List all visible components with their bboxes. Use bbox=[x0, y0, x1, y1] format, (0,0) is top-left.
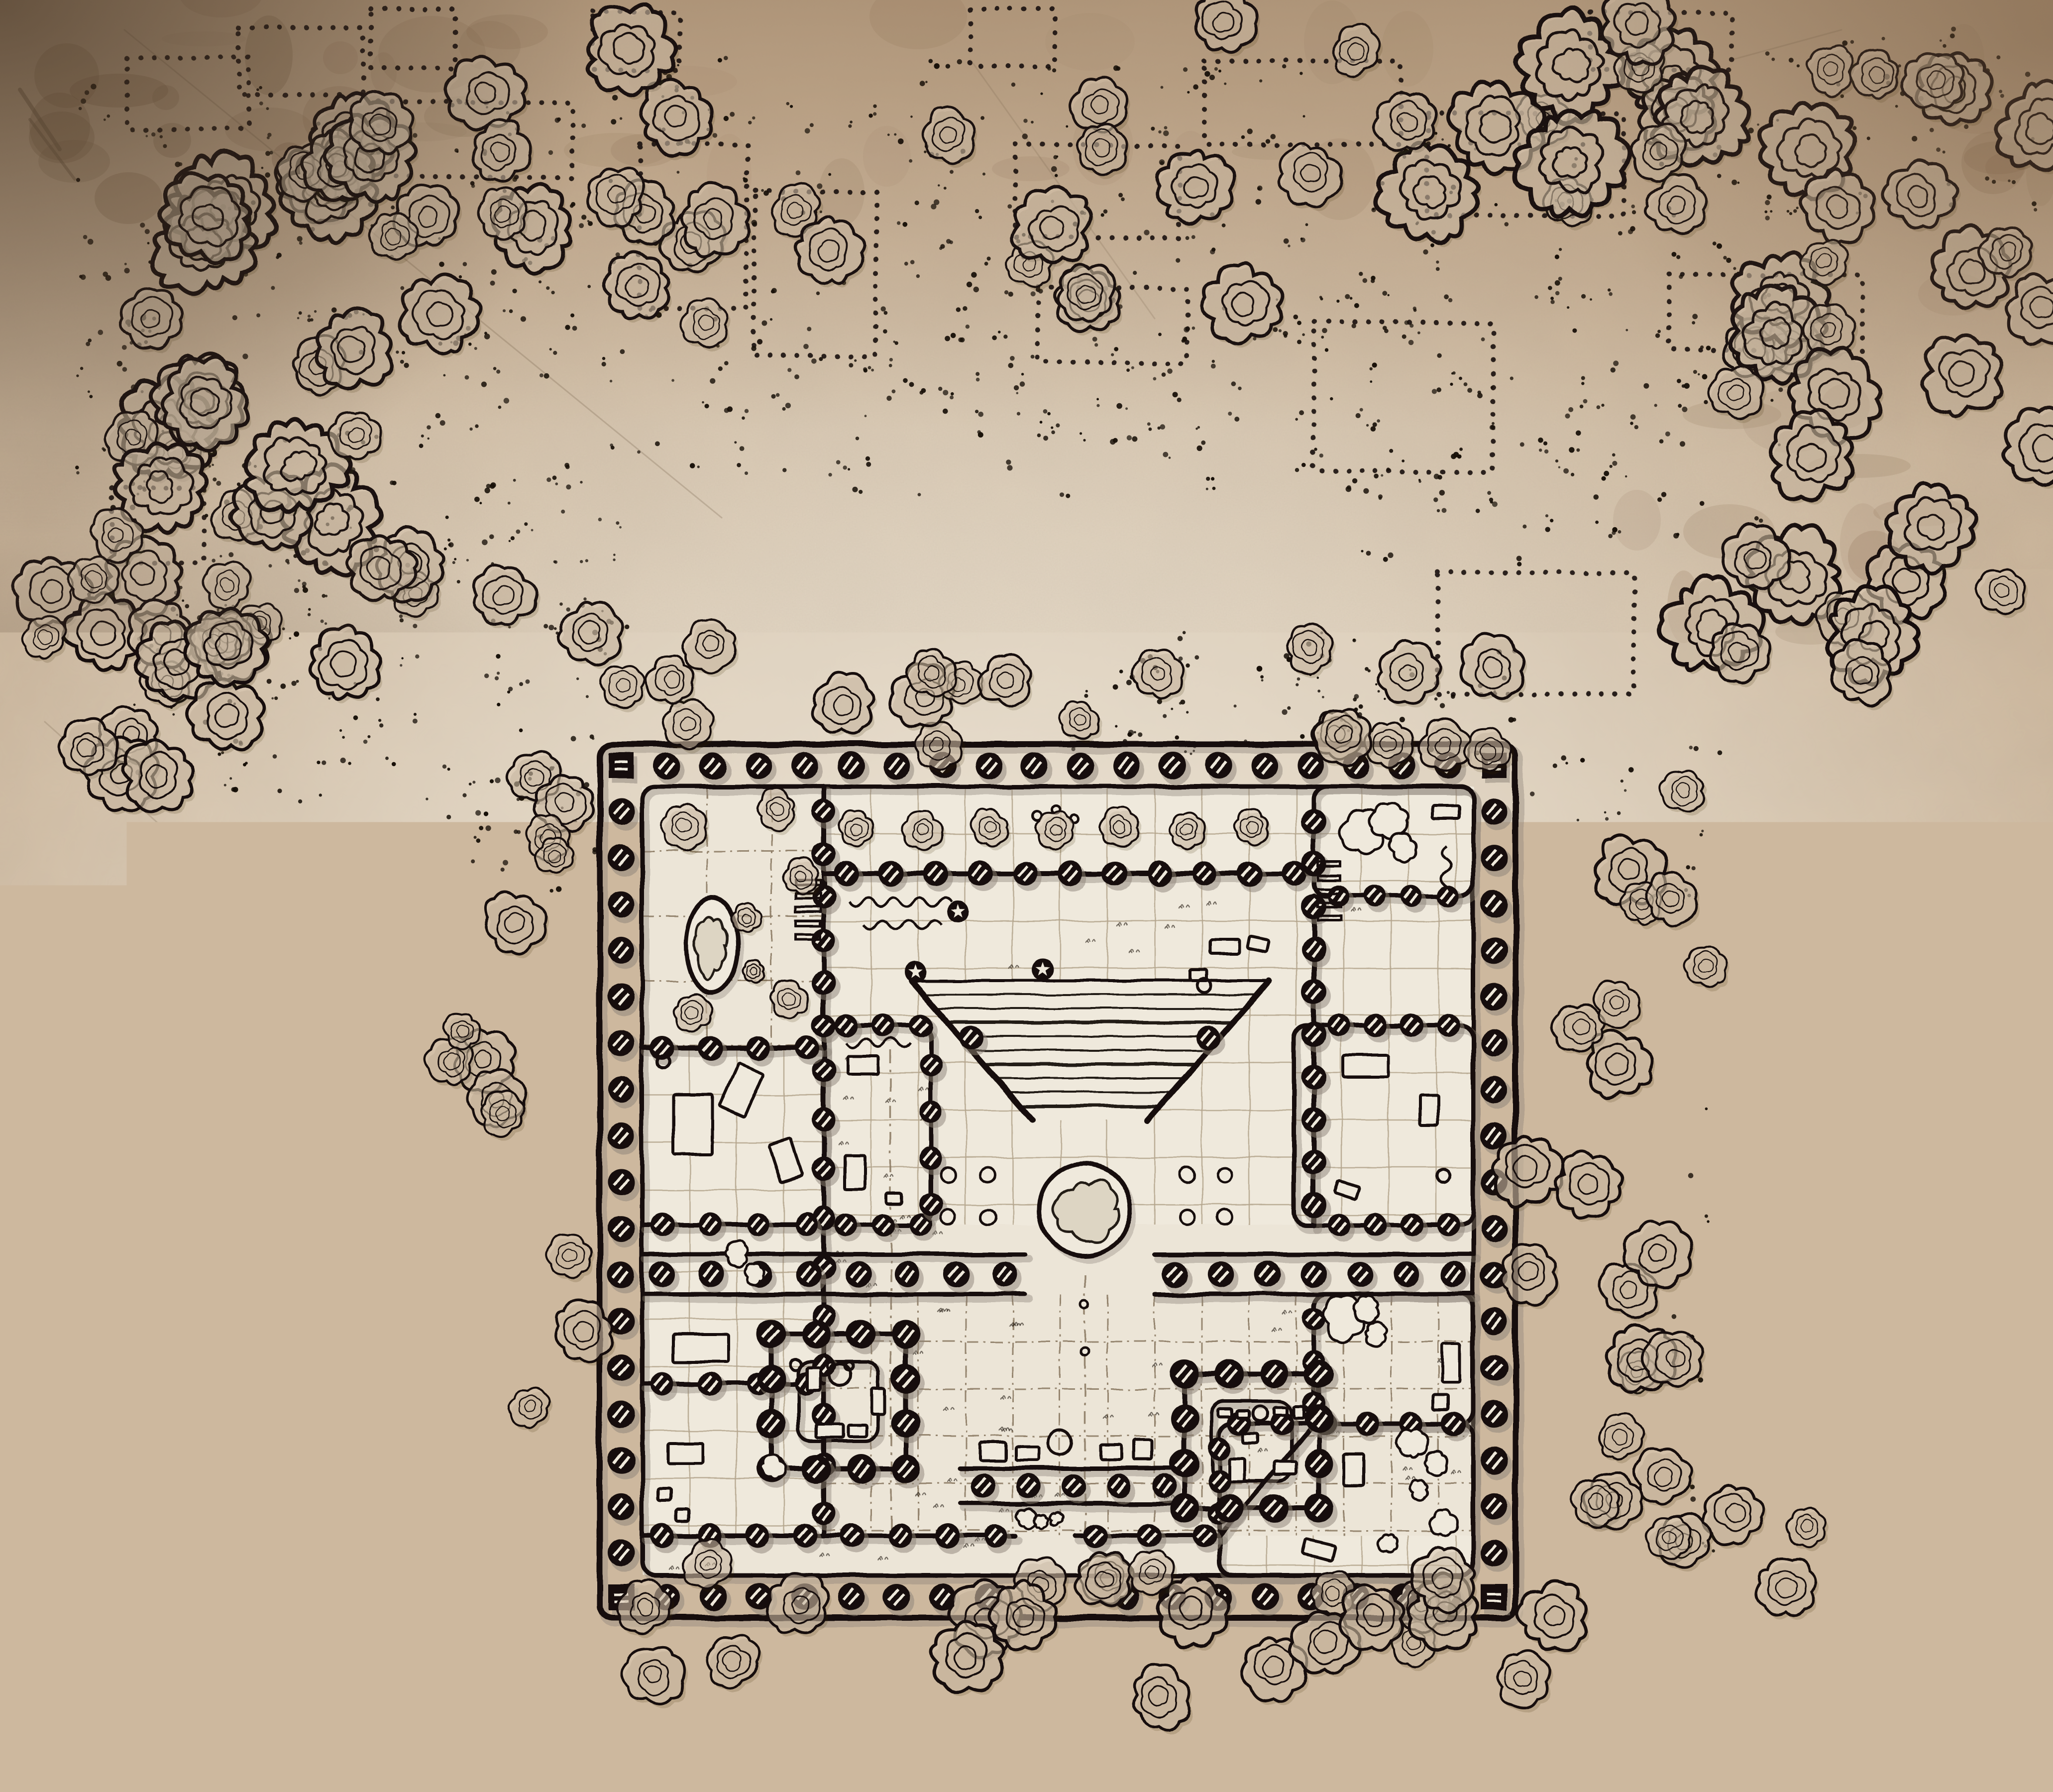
vignette-top-right bbox=[0, 0, 2053, 1792]
ruined-temple-map-canvas: JAN 03 2025 DYSON LOGOS CARTOGRAPHY SUPP… bbox=[0, 0, 2053, 1792]
footer-divider bbox=[434, 1723, 439, 1787]
footer-website-link[interactable]: www.DYSONLOGOS.com bbox=[457, 1743, 851, 1776]
footer-on-label: ON bbox=[238, 1750, 274, 1774]
footer-patreon-label: PATREON bbox=[280, 1743, 441, 1776]
footer-supported-label: SUPPORTED bbox=[44, 1743, 255, 1776]
